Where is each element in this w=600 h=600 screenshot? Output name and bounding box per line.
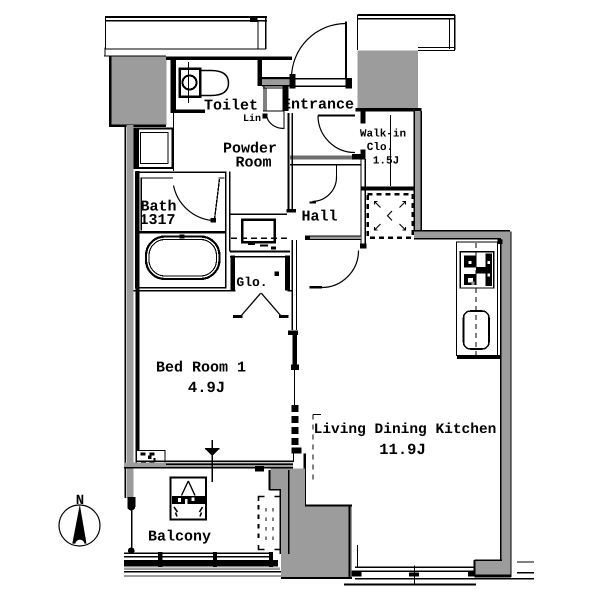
svg-text:11.9J: 11.9J (379, 441, 426, 459)
svg-text:Entrance: Entrance (282, 97, 354, 114)
svg-text:Hall: Hall (301, 209, 337, 226)
svg-text:1.5J: 1.5J (373, 156, 399, 168)
svg-text:Toilet: Toilet (204, 98, 258, 115)
svg-text:Bed Room 1: Bed Room 1 (156, 360, 246, 377)
svg-text:4.9J: 4.9J (188, 379, 225, 397)
svg-text:1317: 1317 (139, 212, 175, 229)
svg-text:Glo.: Glo. (236, 275, 267, 290)
svg-text:Living Dining Kitchen: Living Dining Kitchen (314, 422, 497, 438)
svg-text:Lin: Lin (243, 113, 261, 125)
svg-text:Walk-in: Walk-in (360, 129, 406, 141)
svg-text:Balcony: Balcony (148, 529, 211, 546)
svg-text:Clo.: Clo. (367, 142, 393, 154)
svg-text:Room: Room (235, 154, 271, 171)
